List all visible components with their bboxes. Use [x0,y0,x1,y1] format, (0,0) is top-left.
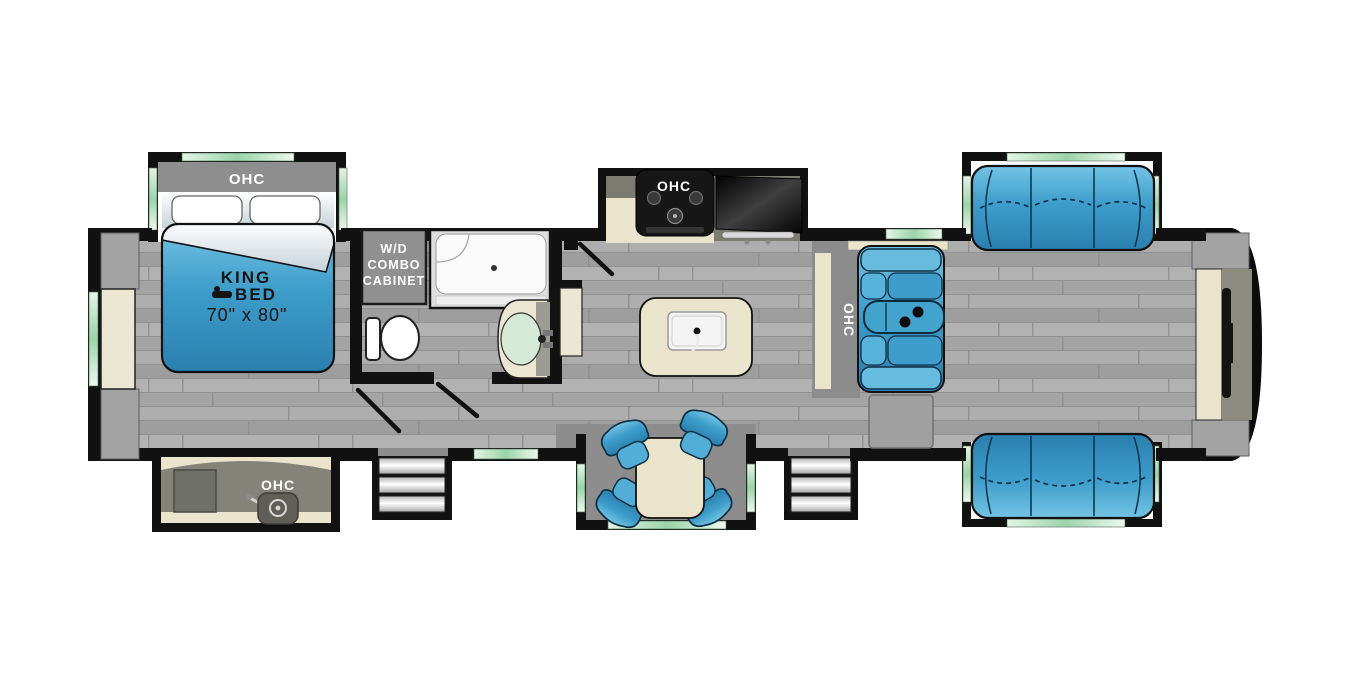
bathroom-wall-left [350,228,362,384]
cupholder [900,317,911,328]
island-faucet [694,328,701,335]
kitchen-tv [716,176,802,245]
pillow-left [172,196,242,224]
front-window [89,292,98,386]
wd-combo-cabinet: W/D COMBO CABINET [362,230,426,304]
hallway-window [474,449,538,459]
wall-bottom-4 [750,448,788,461]
living-ohc-cabinet: OHC [812,241,860,398]
entry-steps-main [784,448,858,520]
pantry-cabinet [560,288,582,356]
wall-bottom-2 [334,448,378,461]
dinette-window-right [747,464,755,512]
rv-floorplan-page: OHC OHC [0,0,1366,683]
theater-sofa [858,246,944,392]
wall-bottom-5 [850,448,966,461]
outside-kitchen-fridge [174,470,216,512]
sofa-seat-cushion [888,273,942,299]
sofa-slideout-top [962,152,1162,250]
pillow-right [250,196,320,224]
kitchen-window [886,229,942,239]
rear-entertainment-center [1196,269,1222,420]
kitchen-island [640,298,752,376]
kitchen-ohc-label: OHC [657,178,691,194]
faucet [538,335,546,343]
sofa-seat-cushion [888,336,942,365]
steps-front-threshold [374,448,450,456]
step-tread [379,458,445,474]
sofa-top-window-left [963,176,971,234]
sofa-back-cushion [861,336,886,365]
toilet [366,316,419,360]
rear-tv-mount [1229,323,1233,363]
step-tread [379,496,445,512]
sofa-back-cushion [861,273,886,299]
shower [430,230,550,308]
wd-label-line3: CABINET [363,274,426,288]
wall-bottom-6 [1156,448,1206,461]
wall-top-4 [1156,228,1206,241]
front-wardrobe [101,289,135,389]
cupholder [913,307,924,318]
bedroom-window-left [149,168,157,230]
sofa-top-window-rear [1007,153,1125,161]
sofa-top [972,166,1154,250]
outside-kitchen-bay: OHC [152,448,340,532]
step-tread [791,458,851,474]
sofa-bottom-window-rear [1007,519,1125,527]
king-bed-label-line2: BED [235,285,277,304]
faucet-handle [543,330,553,336]
entry-cabinet [869,395,933,448]
shower-drain [491,265,497,271]
outside-kitchen-ohc-label: OHC [261,477,295,493]
bathroom-sink [501,313,541,365]
faucet-handle [543,342,553,348]
sofa-armrest-bottom [861,367,941,389]
entry-steps-front [372,448,452,520]
kitchen-bumpout: OHC [598,168,808,245]
living-ohc-label: OHC [841,303,857,337]
sofa-armrest-top [861,249,941,271]
front-cabinet-bottom [101,389,139,459]
wd-label-line1: W/D [380,242,407,256]
pantry-wall-top [548,280,582,288]
tv-stand [722,232,794,238]
front-cabinet-top [101,233,139,289]
bathroom-vanity [498,300,553,378]
steps-main-threshold [786,448,856,456]
step-tread [791,496,851,512]
sofa-slideout-bottom [962,434,1162,527]
bedroom-window-top [182,153,294,161]
step-tread [791,477,851,493]
kitchen-door-stub [564,228,578,250]
step-tread [379,477,445,493]
front-closet [101,233,139,459]
bedroom-ohc-label: OHC [229,171,265,188]
rear-cap [1192,228,1262,461]
bedroom-window-right [339,168,347,230]
king-bed-dimensions: 70" x 80" [207,305,288,325]
bathroom-wall-bottom-left [350,372,434,384]
sofa-bottom [972,434,1154,518]
dinette-window-left [577,464,585,512]
floorplan-drawing: OHC OHC [0,0,1366,683]
king-bed: KING BED 70" x 80" [162,192,334,372]
wd-label-line2: COMBO [368,258,421,272]
